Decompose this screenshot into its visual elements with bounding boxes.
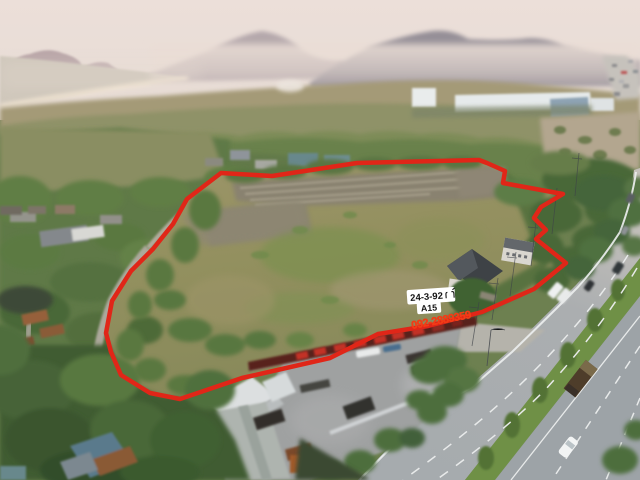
svg-text:A15: A15 [421, 302, 438, 313]
